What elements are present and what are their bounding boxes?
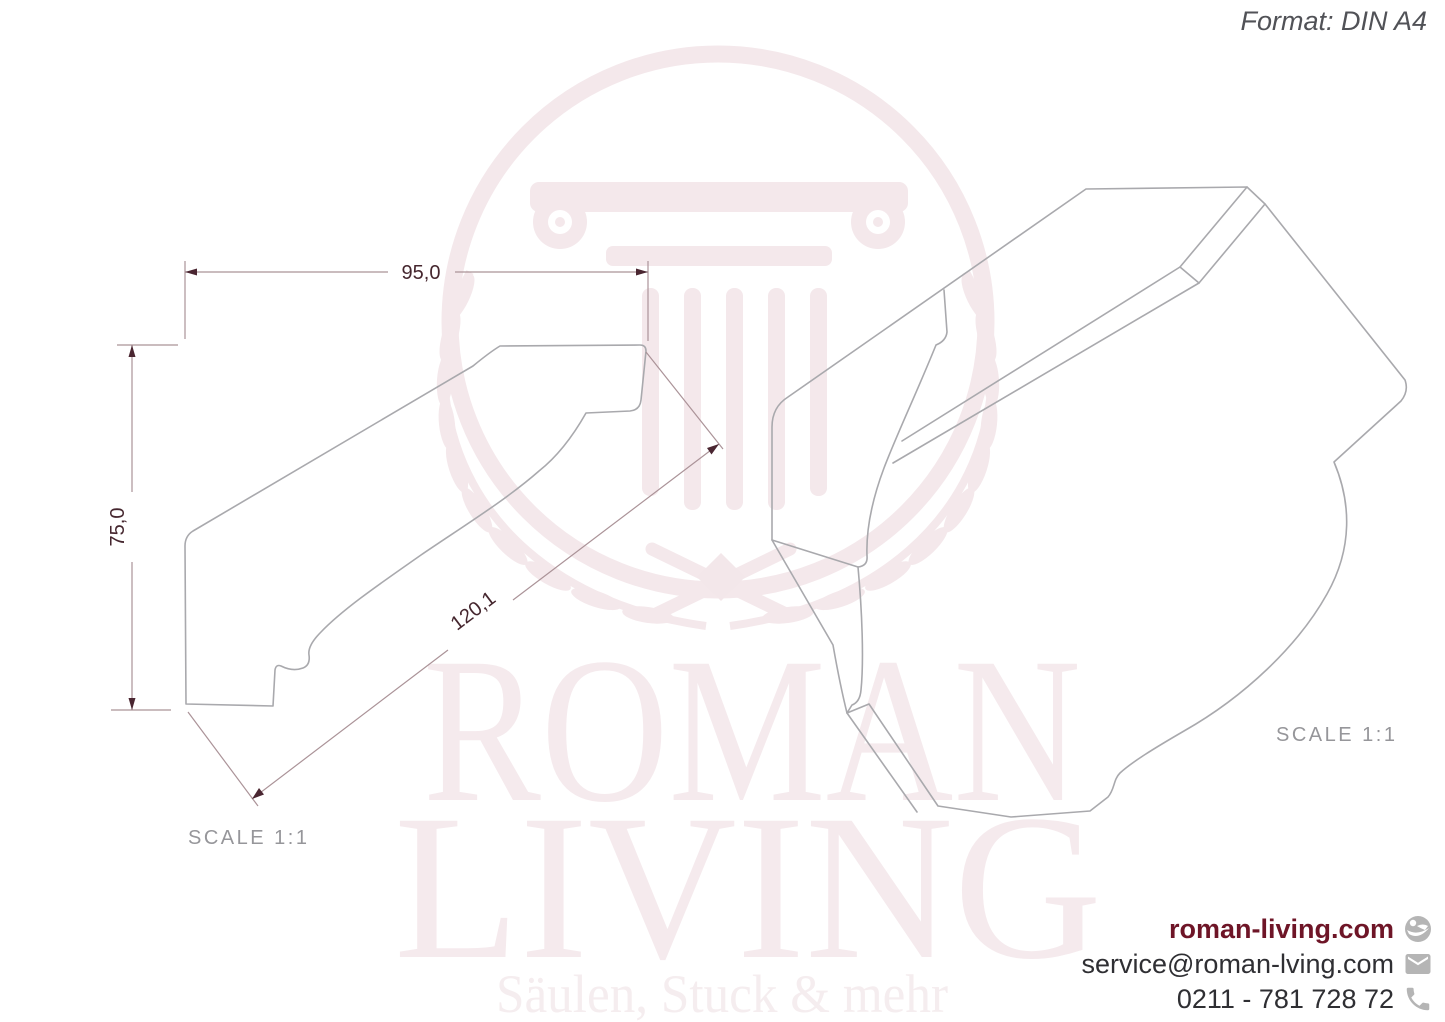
format-label: Format: DIN A4	[1240, 6, 1427, 37]
drawing-canvas: ROMAN LIVING Säulen, Stuck & mehr	[0, 0, 1445, 1022]
scale-label-left: SCALE 1:1	[188, 827, 309, 850]
globe-icon	[1403, 914, 1433, 944]
contact-block: roman-living.com service@roman-lving.com…	[1082, 912, 1434, 1016]
contact-website-link[interactable]: roman-living.com	[1169, 914, 1394, 945]
dim-height-label: 75,0	[107, 508, 129, 547]
contact-phone-row: 0211 - 781 728 72	[1177, 982, 1433, 1016]
contact-email[interactable]: service@roman-lving.com	[1082, 949, 1395, 980]
watermark-tagline: Säulen, Stuck & mehr	[496, 964, 948, 1022]
watermark-logo: ROMAN LIVING Säulen, Stuck & mehr	[394, 54, 1102, 1022]
dim-diagonal-ext-bottom	[188, 712, 258, 806]
datasheet-page: ROMAN LIVING Säulen, Stuck & mehr	[0, 0, 1445, 1022]
phone-icon	[1403, 984, 1433, 1014]
envelope-icon	[1403, 949, 1433, 979]
dim-width-label: 95,0	[402, 262, 441, 284]
scale-label-right: SCALE 1:1	[1276, 724, 1397, 747]
contact-website-row: roman-living.com	[1169, 912, 1433, 946]
contact-email-row: service@roman-lving.com	[1082, 947, 1434, 981]
ring-icon	[450, 54, 986, 590]
contact-phone[interactable]: 0211 - 781 728 72	[1177, 984, 1394, 1015]
